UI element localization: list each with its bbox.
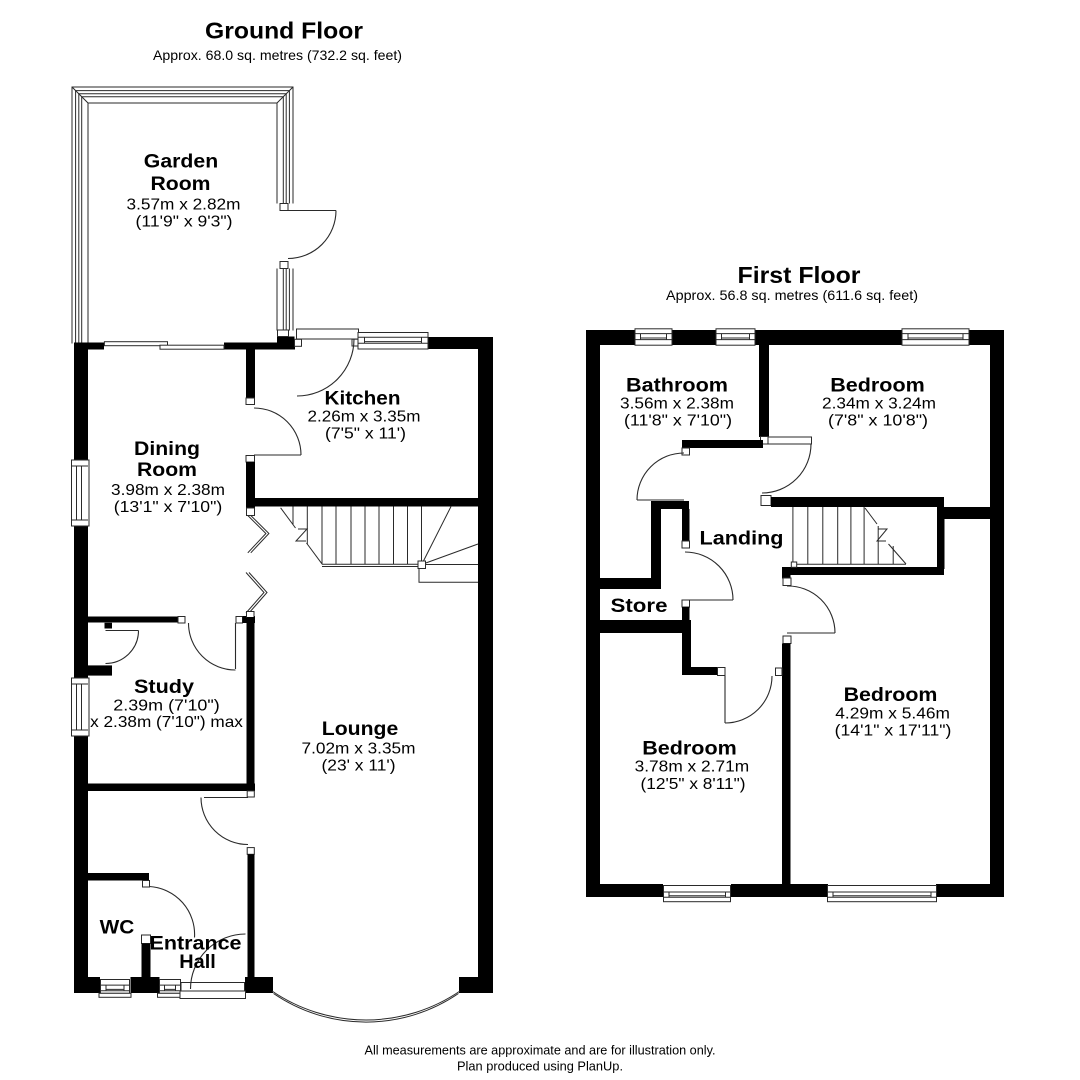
svg-text:Lounge: Lounge bbox=[322, 718, 399, 740]
svg-text:Ground Floor: Ground Floor bbox=[205, 18, 363, 44]
svg-text:(11'9" x 9'3"): (11'9" x 9'3") bbox=[136, 213, 233, 230]
svg-text:Bedroom: Bedroom bbox=[642, 737, 737, 759]
svg-text:2.34m x 3.24m: 2.34m x 3.24m bbox=[822, 396, 936, 413]
svg-text:(7'8" x 10'8"): (7'8" x 10'8") bbox=[828, 413, 928, 430]
svg-text:Approx. 56.8 sq. metres (611.6: Approx. 56.8 sq. metres (611.6 sq. feet) bbox=[666, 287, 918, 303]
svg-text:3.57m x 2.82m: 3.57m x 2.82m bbox=[127, 196, 241, 213]
svg-text:3.98m x 2.38m: 3.98m x 2.38m bbox=[111, 482, 225, 499]
svg-text:(13'1" x 7'10"): (13'1" x 7'10") bbox=[114, 499, 223, 516]
svg-text:Room: Room bbox=[137, 459, 197, 481]
svg-text:(12'5" x 8'11"): (12'5" x 8'11") bbox=[641, 776, 746, 793]
svg-text:Store: Store bbox=[611, 595, 668, 617]
svg-text:(11'8" x 7'10"): (11'8" x 7'10") bbox=[624, 413, 732, 430]
svg-text:Landing: Landing bbox=[700, 528, 784, 550]
svg-text:First Floor: First Floor bbox=[738, 262, 861, 288]
svg-text:Kitchen: Kitchen bbox=[325, 388, 401, 410]
svg-text:2.26m x 3.35m: 2.26m x 3.35m bbox=[308, 409, 421, 426]
svg-text:Bedroom: Bedroom bbox=[830, 375, 925, 397]
svg-text:(23' x 11'): (23' x 11') bbox=[322, 758, 396, 775]
svg-text:Plan produced using PlanUp.: Plan produced using PlanUp. bbox=[457, 1059, 623, 1074]
svg-text:(7'5" x 11'): (7'5" x 11') bbox=[325, 426, 406, 443]
svg-text:All measurements are approxima: All measurements are approximate and are… bbox=[365, 1043, 716, 1058]
svg-text:2.39m (7'10"): 2.39m (7'10") bbox=[113, 698, 220, 715]
svg-text:3.78m x 2.71m: 3.78m x 2.71m bbox=[635, 759, 750, 776]
svg-text:Room: Room bbox=[151, 173, 211, 195]
svg-text:(14'1" x 17'11"): (14'1" x 17'11") bbox=[835, 722, 952, 739]
svg-text:Bedroom: Bedroom bbox=[844, 684, 938, 706]
svg-text:7.02m x 3.35m: 7.02m x 3.35m bbox=[302, 741, 416, 758]
svg-text:WC: WC bbox=[100, 917, 135, 939]
svg-text:3.56m x 2.38m: 3.56m x 2.38m bbox=[620, 396, 734, 413]
svg-text:Bathroom: Bathroom bbox=[626, 375, 728, 397]
svg-text:Garden: Garden bbox=[144, 151, 218, 173]
svg-text:Hall: Hall bbox=[179, 951, 216, 973]
svg-text:Approx. 68.0 sq. metres (732.2: Approx. 68.0 sq. metres (732.2 sq. feet) bbox=[153, 47, 402, 63]
svg-text:x 2.38m (7'10") max: x 2.38m (7'10") max bbox=[90, 714, 243, 731]
svg-text:4.29m x 5.46m: 4.29m x 5.46m bbox=[835, 705, 950, 722]
svg-text:Dining: Dining bbox=[134, 438, 200, 460]
svg-text:Study: Study bbox=[134, 676, 194, 698]
